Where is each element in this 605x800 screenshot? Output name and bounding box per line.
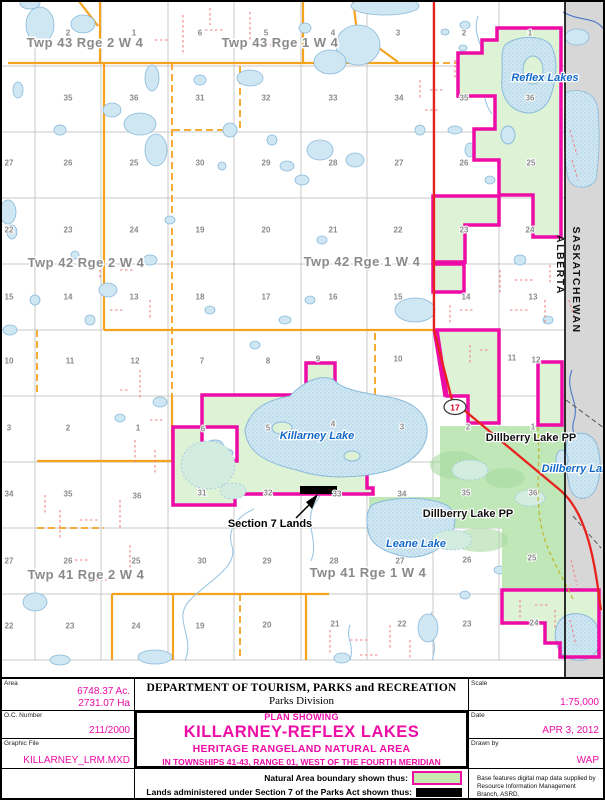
date-value: APR 3, 2012 bbox=[542, 725, 599, 736]
legend-natural-area-text: Natural Area boundary shown thus: bbox=[264, 773, 408, 783]
svg-text:14: 14 bbox=[64, 293, 73, 302]
svg-text:30: 30 bbox=[198, 557, 207, 566]
department-header: DEPARTMENT OF TOURISM, PARKS and RECREAT… bbox=[135, 679, 469, 711]
drawn-by-value: WAP bbox=[577, 755, 599, 766]
plan-title-box: PLAN SHOWING KILLARNEY-REFLEX LAKES HERI… bbox=[135, 711, 469, 769]
svg-text:27: 27 bbox=[5, 557, 14, 566]
svg-text:12: 12 bbox=[532, 356, 541, 365]
legend-section7-text: Lands administered under Section 7 of th… bbox=[146, 787, 412, 797]
svg-text:30: 30 bbox=[196, 159, 205, 168]
title-block: Area 6748.37 Ac. 2731.07 Ha DEPARTMENT O… bbox=[2, 677, 603, 798]
credit-note: Base features digital map data supplied … bbox=[469, 769, 603, 799]
svg-text:35: 35 bbox=[462, 489, 471, 498]
svg-text:8: 8 bbox=[266, 357, 271, 366]
svg-text:1: 1 bbox=[531, 423, 536, 432]
area-label: Area bbox=[4, 680, 18, 687]
section7-swatch bbox=[416, 788, 462, 797]
svg-text:20: 20 bbox=[263, 621, 272, 630]
svg-text:25: 25 bbox=[527, 159, 536, 168]
svg-text:34: 34 bbox=[398, 490, 407, 499]
date-cell: Date APR 3, 2012 bbox=[469, 711, 603, 739]
svg-text:27: 27 bbox=[5, 159, 14, 168]
svg-text:3: 3 bbox=[400, 423, 405, 432]
svg-text:26: 26 bbox=[460, 159, 469, 168]
division-title: Parks Division bbox=[269, 695, 334, 707]
svg-text:27: 27 bbox=[395, 159, 404, 168]
scale-label: Scale bbox=[471, 680, 487, 687]
area-hectares: 2731.07 Ha bbox=[77, 698, 130, 710]
svg-text:15: 15 bbox=[5, 293, 14, 302]
svg-text:13: 13 bbox=[529, 293, 538, 302]
area-cell: Area 6748.37 Ac. 2731.07 Ha bbox=[2, 679, 135, 711]
svg-text:Twp 43 Rge 1 W 4: Twp 43 Rge 1 W 4 bbox=[222, 35, 339, 50]
svg-text:12: 12 bbox=[131, 357, 140, 366]
svg-text:Dillberry Lake PP: Dillberry Lake PP bbox=[486, 432, 577, 444]
svg-text:36: 36 bbox=[526, 94, 535, 103]
plan-subtitle: HERITAGE RANGELAND NATURAL AREA bbox=[193, 743, 411, 755]
svg-text:32: 32 bbox=[262, 94, 271, 103]
svg-text:6: 6 bbox=[201, 425, 206, 434]
oc-number-cell: O.C. Number 211/2000 bbox=[2, 711, 135, 739]
svg-text:26: 26 bbox=[64, 159, 73, 168]
svg-text:22: 22 bbox=[398, 620, 407, 629]
svg-text:2: 2 bbox=[462, 29, 467, 38]
alberta-label: ALBERTA bbox=[554, 235, 566, 295]
svg-text:35: 35 bbox=[64, 490, 73, 499]
svg-text:33: 33 bbox=[329, 94, 338, 103]
oc-number-label: O.C. Number bbox=[4, 712, 42, 719]
svg-text:Twp 41 Rge 1 W 4: Twp 41 Rge 1 W 4 bbox=[310, 565, 427, 580]
svg-text:19: 19 bbox=[196, 226, 205, 235]
svg-text:24: 24 bbox=[132, 622, 141, 631]
plan-description: IN TOWNSHIPS 41-43, RANGE 01, WEST OF TH… bbox=[162, 757, 440, 767]
scale-value: 1:75,000 bbox=[560, 697, 599, 708]
corner-lake bbox=[555, 614, 599, 661]
svg-text:22: 22 bbox=[5, 226, 14, 235]
svg-text:Dillberry Lake PP: Dillberry Lake PP bbox=[423, 508, 514, 520]
svg-text:2: 2 bbox=[466, 423, 471, 432]
natural-area-swatch bbox=[412, 771, 462, 785]
svg-text:Twp 43 Rge 2 W 4: Twp 43 Rge 2 W 4 bbox=[27, 35, 144, 50]
svg-text:Twp 41 Rge 2 W 4: Twp 41 Rge 2 W 4 bbox=[28, 567, 145, 582]
area-acres: 6748.37 Ac. bbox=[77, 686, 130, 698]
department-title: DEPARTMENT OF TOURISM, PARKS and RECREAT… bbox=[146, 682, 456, 694]
svg-text:Killarney Lake: Killarney Lake bbox=[280, 430, 355, 442]
svg-text:11: 11 bbox=[66, 357, 75, 366]
svg-text:17: 17 bbox=[262, 293, 271, 302]
svg-text:31: 31 bbox=[198, 489, 207, 498]
svg-text:29: 29 bbox=[262, 159, 271, 168]
plan-sheet: 1721654321353631323334353627262530292827… bbox=[0, 0, 605, 800]
date-label: Date bbox=[471, 712, 485, 719]
svg-text:Twp 42 Rge 1 W 4: Twp 42 Rge 1 W 4 bbox=[304, 254, 421, 269]
svg-text:25: 25 bbox=[528, 554, 537, 563]
svg-text:29: 29 bbox=[263, 557, 272, 566]
svg-text:3: 3 bbox=[7, 424, 12, 433]
svg-text:22: 22 bbox=[394, 226, 403, 235]
graphic-file-label: Graphic File bbox=[4, 740, 39, 747]
svg-text:19: 19 bbox=[196, 622, 205, 631]
svg-text:5: 5 bbox=[266, 424, 271, 433]
svg-text:34: 34 bbox=[395, 94, 404, 103]
svg-text:23: 23 bbox=[66, 622, 75, 631]
drawn-by-label: Drawn by bbox=[471, 740, 498, 747]
graphic-file-value: KILLARNEY_LRM.MXD bbox=[23, 755, 130, 766]
svg-text:10: 10 bbox=[5, 357, 14, 366]
svg-text:23: 23 bbox=[460, 226, 469, 235]
svg-text:3: 3 bbox=[396, 29, 401, 38]
svg-text:6: 6 bbox=[198, 29, 203, 38]
svg-text:36: 36 bbox=[130, 94, 139, 103]
section7-lands-label: Section 7 Lands bbox=[228, 518, 312, 530]
svg-text:2: 2 bbox=[66, 424, 71, 433]
svg-text:21: 21 bbox=[329, 226, 338, 235]
svg-text:21: 21 bbox=[331, 620, 340, 629]
legend: Natural Area boundary shown thus: Lands … bbox=[135, 769, 469, 799]
map-drawing: 1721654321353631323334353627262530292827… bbox=[0, 0, 605, 677]
empty-cell bbox=[2, 769, 135, 799]
svg-text:36: 36 bbox=[529, 489, 538, 498]
graphic-file-cell: Graphic File KILLARNEY_LRM.MXD bbox=[2, 739, 135, 769]
svg-text:35: 35 bbox=[64, 94, 73, 103]
svg-text:23: 23 bbox=[463, 620, 472, 629]
svg-text:24: 24 bbox=[130, 226, 139, 235]
saskatchewan-label: SASKATCHEWAN bbox=[570, 226, 582, 333]
svg-text:34: 34 bbox=[5, 490, 14, 499]
svg-text:Leane Lake: Leane Lake bbox=[386, 538, 446, 550]
plan-title: KILLARNEY-REFLEX LAKES bbox=[184, 723, 420, 742]
svg-text:20: 20 bbox=[262, 226, 271, 235]
svg-text:14: 14 bbox=[462, 293, 471, 302]
svg-text:16: 16 bbox=[329, 293, 338, 302]
svg-text:25: 25 bbox=[130, 159, 139, 168]
svg-text:22: 22 bbox=[5, 622, 14, 631]
svg-text:33: 33 bbox=[333, 490, 342, 499]
svg-text:32: 32 bbox=[264, 489, 273, 498]
svg-text:24: 24 bbox=[526, 226, 535, 235]
svg-text:Twp 42 Rge 2 W 4: Twp 42 Rge 2 W 4 bbox=[28, 255, 145, 270]
svg-text:31: 31 bbox=[196, 94, 205, 103]
svg-text:Reflex Lakes: Reflex Lakes bbox=[511, 72, 578, 84]
svg-text:36: 36 bbox=[133, 492, 142, 501]
scale-cell: Scale 1:75,000 bbox=[469, 679, 603, 711]
svg-text:24: 24 bbox=[530, 619, 539, 628]
svg-text:25: 25 bbox=[132, 557, 141, 566]
svg-text:17: 17 bbox=[450, 403, 460, 413]
map-canvas: 1721654321353631323334353627262530292827… bbox=[0, 0, 605, 677]
drawn-by-cell: Drawn by WAP bbox=[469, 739, 603, 769]
oc-number-value: 211/2000 bbox=[89, 725, 130, 736]
svg-text:26: 26 bbox=[463, 556, 472, 565]
svg-text:13: 13 bbox=[130, 293, 139, 302]
svg-text:18: 18 bbox=[196, 293, 205, 302]
svg-text:15: 15 bbox=[394, 293, 403, 302]
svg-text:1: 1 bbox=[528, 29, 533, 38]
svg-text:28: 28 bbox=[329, 159, 338, 168]
svg-text:11: 11 bbox=[508, 354, 517, 363]
svg-text:26: 26 bbox=[64, 557, 73, 566]
svg-text:1: 1 bbox=[136, 424, 141, 433]
svg-text:Dillberry Lake: Dillberry Lake bbox=[542, 463, 605, 475]
svg-text:9: 9 bbox=[316, 355, 321, 364]
svg-text:23: 23 bbox=[64, 226, 73, 235]
highway-17-shield: 17 bbox=[444, 400, 466, 415]
plan-showing: PLAN SHOWING bbox=[264, 712, 339, 722]
svg-text:4: 4 bbox=[331, 420, 336, 429]
svg-text:10: 10 bbox=[394, 355, 403, 364]
svg-text:35: 35 bbox=[460, 94, 469, 103]
svg-text:7: 7 bbox=[200, 357, 205, 366]
